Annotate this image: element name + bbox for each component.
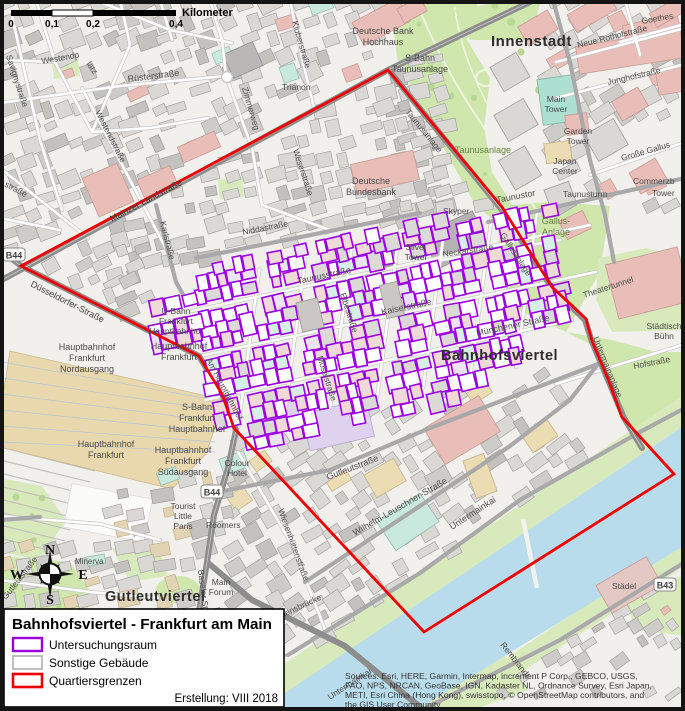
svg-text:Kilometer: Kilometer	[182, 7, 233, 19]
svg-text:S: S	[46, 593, 54, 608]
svg-text:Forum: Forum	[209, 587, 234, 597]
svg-text:Skyper: Skyper	[443, 206, 470, 216]
svg-text:Taunusanlage: Taunusanlage	[455, 145, 511, 155]
svg-text:Roomers: Roomers	[206, 520, 240, 530]
svg-text:Frankfurt: Frankfurt	[179, 413, 216, 423]
svg-text:Deutsche: Deutsche	[352, 176, 390, 186]
svg-text:Städtisch: Städtisch	[647, 321, 682, 331]
svg-text:Nordausgang: Nordausgang	[60, 364, 114, 374]
svg-text:Erstellung: VIII 2018: Erstellung: VIII 2018	[174, 693, 278, 705]
svg-text:FAO, NPS, NRCAN, GeoBase, IGN,: FAO, NPS, NRCAN, GeoBase, IGN, Kadaster …	[345, 681, 652, 691]
svg-text:Tower: Tower	[652, 188, 675, 198]
svg-text:Hauptbahnhof: Hauptbahnhof	[59, 342, 116, 352]
svg-text:Hauptbahnhof: Hauptbahnhof	[169, 424, 226, 434]
svg-text:Tourist: Tourist	[170, 501, 196, 511]
svg-text:W: W	[10, 568, 24, 583]
svg-text:Frankfurt: Frankfurt	[159, 316, 194, 326]
svg-text:Tower: Tower	[567, 136, 590, 146]
svg-text:Hochhaus: Hochhaus	[363, 37, 404, 47]
svg-text:Bahnhofsviertel: Bahnhofsviertel	[441, 348, 558, 364]
svg-text:Little: Little	[174, 511, 192, 521]
svg-text:Japan: Japan	[553, 156, 576, 166]
svg-text:Frankfurt: Frankfurt	[88, 450, 125, 460]
svg-text:Deutsche Bank: Deutsche Bank	[352, 26, 414, 36]
svg-text:Gallus-: Gallus-	[542, 216, 571, 226]
svg-text:Colour: Colour	[224, 458, 249, 468]
svg-text:Center: Center	[552, 166, 578, 176]
svg-text:Garden: Garden	[564, 126, 593, 136]
svg-text:Trianon: Trianon	[282, 82, 311, 92]
svg-text:Bühn: Bühn	[654, 331, 674, 341]
svg-text:Main: Main	[547, 94, 566, 104]
svg-text:B44: B44	[204, 488, 221, 498]
svg-text:Tower: Tower	[545, 104, 568, 114]
svg-text:Taunusturm: Taunusturm	[563, 189, 607, 199]
svg-text:Silver: Silver	[405, 242, 426, 252]
svg-text:Südausgang: Südausgang	[158, 467, 209, 477]
svg-text:Commerzb: Commerzb	[633, 176, 675, 186]
svg-text:S-Bahn: S-Bahn	[182, 402, 212, 412]
svg-text:0,4: 0,4	[169, 19, 183, 30]
svg-text:Hauptbahnhof: Hauptbahnhof	[155, 445, 212, 455]
svg-text:Bahnhofsviertel - Frankfurt am: Bahnhofsviertel - Frankfurt am Main	[12, 616, 272, 633]
svg-text:0,2: 0,2	[86, 19, 100, 30]
svg-text:METI, Esri China (Hong Kong),: METI, Esri China (Hong Kong), swisstopo,…	[345, 690, 644, 700]
svg-text:Städel: Städel	[612, 581, 636, 591]
svg-text:Anlage: Anlage	[542, 227, 570, 237]
svg-text:B43: B43	[657, 581, 674, 591]
svg-text:Hauptbahnhof: Hauptbahnhof	[149, 326, 203, 336]
svg-text:0,1: 0,1	[45, 19, 59, 30]
svg-text:0: 0	[8, 19, 14, 30]
svg-text:Sonstige Gebäude: Sonstige Gebäude	[49, 656, 149, 670]
svg-text:S-Bahn: S-Bahn	[405, 53, 435, 63]
svg-text:Tower: Tower	[405, 252, 428, 262]
svg-text:Main: Main	[212, 577, 231, 587]
svg-text:Innenstadt: Innenstadt	[491, 33, 572, 50]
svg-text:Taunusanlage: Taunusanlage	[392, 64, 448, 74]
svg-text:Quartiersgrenzen: Quartiersgrenzen	[49, 674, 142, 688]
svg-text:Frankfurt: Frankfurt	[161, 352, 198, 362]
svg-text:Hauptbahnhof: Hauptbahnhof	[78, 439, 135, 449]
svg-text:B44: B44	[6, 251, 23, 261]
svg-text:Gutleutviertel: Gutleutviertel	[105, 589, 205, 605]
svg-text:Untersuchungsraum: Untersuchungsraum	[49, 638, 157, 652]
svg-text:Minerva: Minerva	[75, 557, 104, 566]
svg-text:U-Bahn: U-Bahn	[162, 306, 191, 316]
svg-text:Hauptbahnhof: Hauptbahnhof	[151, 341, 208, 351]
svg-text:E: E	[78, 568, 87, 583]
svg-text:Frankfurt: Frankfurt	[69, 353, 106, 363]
svg-text:Paris: Paris	[173, 521, 192, 531]
svg-text:N: N	[45, 543, 55, 558]
svg-text:Sources: Esri, HERE, Garmin, I: Sources: Esri, HERE, Garmin, Intermap, i…	[345, 671, 638, 681]
svg-text:Hotel: Hotel	[227, 468, 247, 478]
svg-text:Bundesbank: Bundesbank	[346, 187, 397, 197]
svg-text:Frankfurt: Frankfurt	[165, 456, 202, 466]
